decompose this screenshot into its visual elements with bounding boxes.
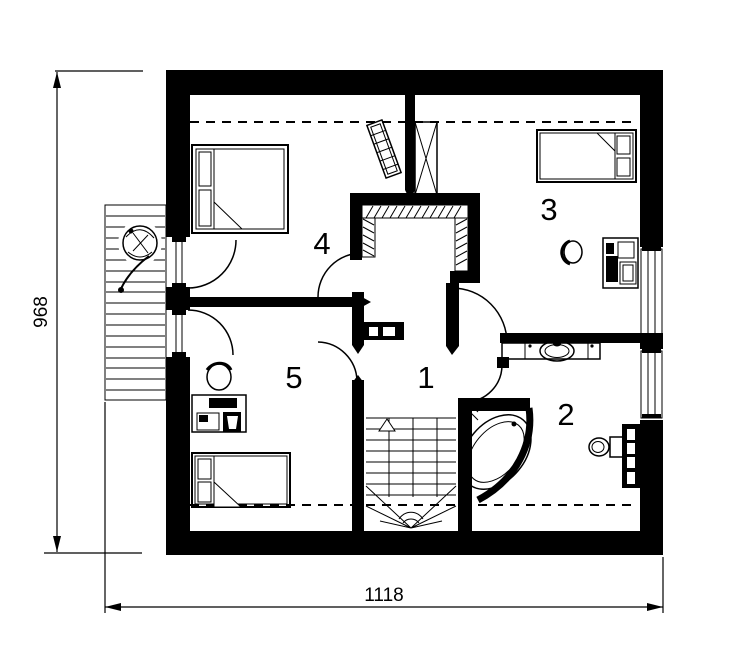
tub-faucet-icon: [512, 422, 517, 427]
faucet-icon: [553, 342, 561, 347]
dimension-height-label: 968: [31, 296, 52, 328]
room-label-3: 3: [540, 192, 557, 227]
dresser: [362, 322, 404, 340]
dimension-width-label: 1118: [364, 585, 403, 606]
room-label-2: 2: [557, 397, 574, 432]
radiator: [622, 424, 640, 488]
floor-plan-canvas: 1 2 3 4 5 968 1118: [0, 0, 749, 661]
floor-plan-drawing: 1 2 3 4 5 968 1118: [0, 0, 749, 661]
room-label-5: 5: [285, 360, 302, 395]
room-label-1: 1: [417, 360, 434, 395]
room-label-4: 4: [313, 226, 330, 261]
